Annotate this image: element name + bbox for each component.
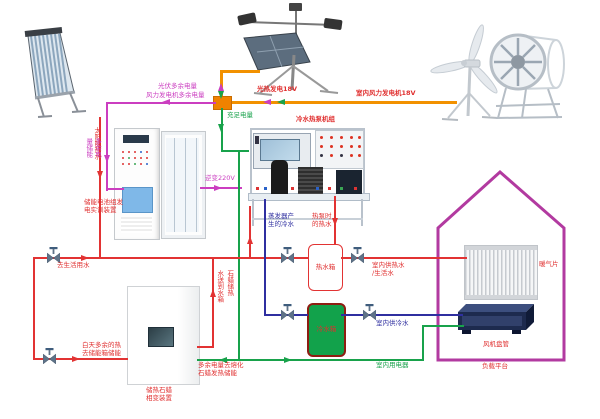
cold-water-tank: 冷水箱 <box>307 303 346 357</box>
valve-icon <box>363 303 376 320</box>
load-platform-label: 负载平台 <box>482 363 508 371</box>
paraffin-cabinet <box>127 286 200 385</box>
surplus-melt-paraffin-label: 多余电量去熔化 石蜡发热储能 <box>198 362 244 378</box>
valve-icon <box>43 347 56 364</box>
cabinet-display <box>123 135 149 143</box>
paraffin-loop-left-vertical <box>33 257 35 360</box>
water-to-tank-label: 水送到水箱 <box>215 270 224 303</box>
green-line-house-up <box>422 325 424 361</box>
power-line-wind-horizontal <box>227 101 457 104</box>
heat-exchanger <box>298 167 323 194</box>
indoor-appliances-label: 室内用电器 <box>376 362 409 370</box>
bench-leg-right <box>361 199 363 226</box>
fan-coil-label: 风机盘管 <box>483 341 509 349</box>
solar-thermal-collector <box>8 22 113 127</box>
flow-arrow <box>104 155 110 163</box>
bench-leg-left <box>252 199 254 226</box>
green-line-to-bench <box>221 150 249 152</box>
system-diagram: 储能电池组发 电实训装置 储热石蜡 相变装置 热水箱 <box>0 0 600 419</box>
flow-arrow <box>247 236 253 244</box>
cold-line-to-fancoil <box>341 314 463 316</box>
heat-pump-return-line <box>249 206 251 259</box>
battery-device-label: 储能电池组发 电实训装置 <box>84 199 123 215</box>
flow-arrow <box>218 124 224 132</box>
bench-tabletop <box>248 193 370 201</box>
hot-water-tank: 热水箱 <box>308 244 343 291</box>
wind-turbine <box>430 24 500 120</box>
compressor <box>271 160 288 194</box>
battery-shelves <box>166 138 199 232</box>
valve-icon <box>281 246 294 263</box>
surplus-line-horizontal <box>106 102 216 104</box>
flow-arrow <box>277 99 285 105</box>
green-line-main-vertical <box>238 150 240 361</box>
daytime-surplus-heat-label: 白天多余的热 去储能箱储能 <box>82 342 121 358</box>
fan-coil-unit <box>456 298 540 338</box>
heat-pump-unit-label: 冷水热泵机组 <box>296 116 335 124</box>
duct-fan <box>491 35 564 118</box>
radiator <box>465 246 537 299</box>
cabinet-blue-module <box>122 187 153 213</box>
valve-icon <box>351 246 364 263</box>
pv-generation-label: 光热发电18V <box>257 86 297 94</box>
flow-arrow <box>72 356 80 362</box>
battery-storage-cabinet <box>161 131 206 239</box>
green-line-to-fancoil <box>422 325 464 327</box>
paraffin-device-label: 储热石蜡 相变装置 <box>146 387 172 403</box>
bench-dark-module <box>336 170 362 194</box>
flow-arrow <box>162 99 170 105</box>
surplus-storage-label: 多余电 量储能 <box>84 138 102 158</box>
cold-water-tank-label: 冷水箱 <box>317 326 337 334</box>
wind-turbine-and-fan <box>398 18 600 123</box>
hot-water-main-left <box>33 257 309 259</box>
radiator-label: 暖气片 <box>539 261 559 269</box>
board-lights <box>320 136 323 139</box>
bench-gauge <box>255 136 259 144</box>
wind-generation-label: 室内风力发电机18V <box>356 90 416 98</box>
paraffin-storage-label: 石蜡储热 <box>225 270 234 296</box>
battery-control-cabinet <box>114 128 160 240</box>
hot-water-tank-label: 热水箱 <box>316 264 336 272</box>
bench-post-left <box>250 128 252 198</box>
evaporator-cold-line-vertical <box>264 199 266 316</box>
inverter-label: 逆变220V <box>205 175 235 183</box>
flow-arrow <box>332 218 338 226</box>
wind-surplus-label: 风力发电机多余电量 <box>146 92 205 100</box>
bench-piping <box>256 187 259 190</box>
power-line-pv-top <box>220 70 260 73</box>
to-domestic-water-label: 去生活用水 <box>57 262 90 270</box>
surplus-line-vertical <box>106 102 108 191</box>
valve-icon <box>281 303 294 320</box>
flow-arrow <box>214 185 222 191</box>
flow-arrow <box>263 99 271 105</box>
surplus-line-to-battery <box>106 188 124 190</box>
flow-arrow <box>218 91 224 99</box>
indicator-lights <box>122 151 124 153</box>
flow-arrow <box>284 357 292 363</box>
indoor-hot-water-label: 室内供热水 /生活水 <box>372 262 405 278</box>
cabinet-vent <box>121 217 152 233</box>
pv-surplus-label: 光伏多余电量 <box>158 83 197 91</box>
indoor-cold-water-label: 室内供冷水 <box>376 320 409 328</box>
pv-solar-tracker <box>232 2 367 97</box>
flow-arrow <box>97 171 103 179</box>
paraffin-screen <box>148 327 174 347</box>
evaporator-cold-label: 蒸发器产 生的冷水 <box>268 213 294 229</box>
flow-arrow <box>218 83 224 91</box>
paraffin-loop-right-vertical <box>212 258 214 348</box>
sufficient-power-label: 充足电量 <box>227 112 253 120</box>
bench-screen <box>260 139 300 161</box>
heat-pump-hot-label: 热泵时 的热水 <box>312 213 332 229</box>
flow-arrow <box>81 255 89 261</box>
